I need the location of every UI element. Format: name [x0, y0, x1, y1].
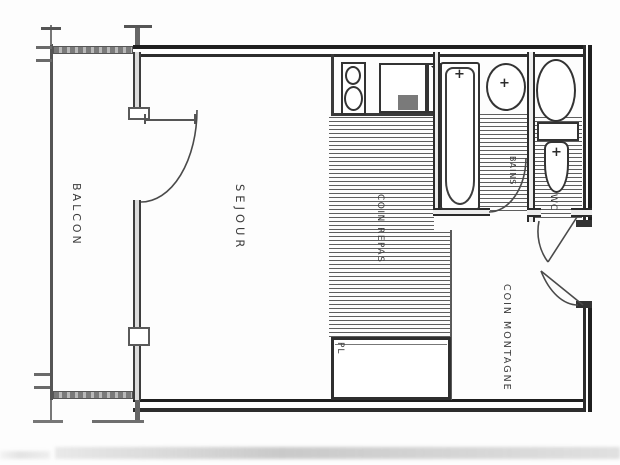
wc-door-arc	[538, 221, 548, 262]
dining-label: COIN REPAS	[374, 194, 386, 268]
door-arcs	[0, 0, 620, 465]
closet-label: PL	[335, 342, 345, 354]
bath-label: BAINS	[508, 156, 517, 185]
wc-label: WC	[548, 194, 558, 211]
scan-smudge	[0, 451, 50, 459]
living-room-label: SEJOUR	[233, 184, 247, 251]
scan-smudge	[55, 447, 620, 459]
balcony-door-arc	[141, 110, 197, 202]
balcony-label: BALCON	[70, 183, 83, 247]
mountain-corner-label: COIN MONTAGNE	[500, 284, 512, 396]
floor-plan: + + + BALCON SEJOUR COIN REPAS BAINS WC …	[0, 0, 620, 465]
wc-door-leaf	[548, 217, 577, 262]
